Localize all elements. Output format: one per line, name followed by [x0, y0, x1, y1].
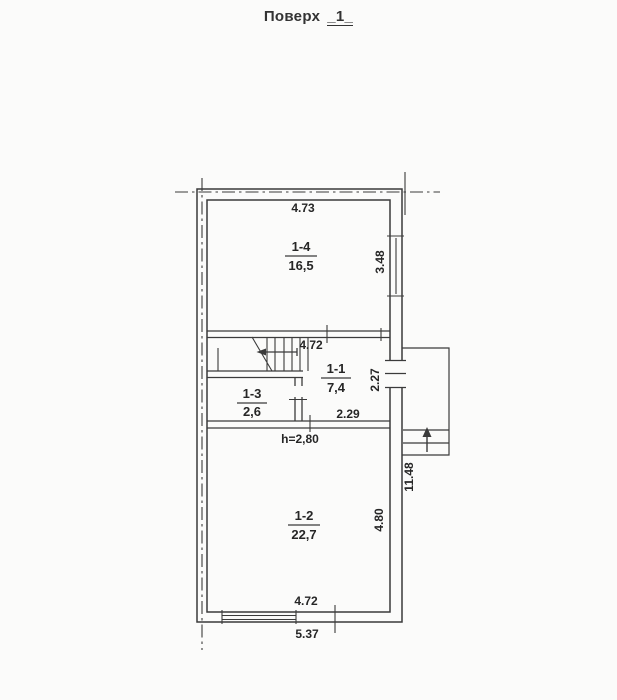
dim-top-width: 4.73	[291, 201, 315, 215]
floor-plan-sheet: Поверх_1_ 1-4	[0, 0, 617, 700]
dim-overall-width: 5.37	[295, 627, 319, 641]
dim-room11-width: 2.29	[336, 407, 360, 421]
dim-hall-width: 4.72	[299, 338, 323, 352]
porch	[402, 348, 449, 455]
dim-overall-height: 11.48	[402, 462, 416, 492]
dim-ceiling-height: h=2,80	[281, 432, 319, 446]
room-1-4-id: 1-4	[292, 239, 312, 254]
room-1-2-id: 1-2	[295, 508, 314, 523]
floor-plan-drawing: 1-4 16,5 1-1 7,4 1-3 2,6 1-2 22,7 4.73 3…	[0, 0, 617, 700]
dim-room12-depth: 4.80	[372, 508, 386, 532]
dim-room14-depth: 3.48	[373, 250, 387, 274]
room-1-1-id: 1-1	[327, 361, 346, 376]
room-1-3-area: 2,6	[243, 404, 261, 419]
interior-door-opening	[294, 386, 303, 397]
dim-bottom-width: 4.72	[294, 594, 318, 608]
room-1-2-area: 22,7	[291, 527, 316, 542]
porch-steps-arrow-icon	[423, 427, 432, 452]
room-1-3-id: 1-3	[243, 386, 262, 401]
room-1-4-area: 16,5	[288, 258, 313, 273]
dim-room11-depth: 2.27	[368, 368, 382, 392]
room-1-1-area: 7,4	[327, 380, 346, 395]
